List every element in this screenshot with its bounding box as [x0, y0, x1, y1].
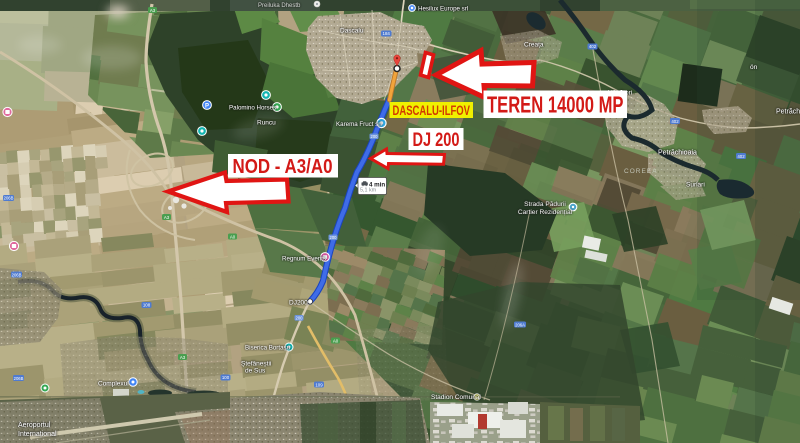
svg-text:P: P	[205, 104, 209, 110]
svg-text:Ștefăneștii: Ștefăneștii	[241, 361, 271, 368]
svg-text:Cartier Rezidențial: Cartier Rezidențial	[518, 209, 573, 216]
svg-text:COREEA: COREEA	[624, 168, 657, 175]
svg-text:DJ 200: DJ 200	[413, 130, 460, 151]
svg-text:402: 402	[737, 154, 745, 159]
svg-text:206B: 206B	[14, 376, 24, 381]
svg-text:Creața: Creața	[524, 42, 544, 49]
svg-text:A3: A3	[164, 215, 170, 220]
svg-text:Karema Fruct srl: Karema Fruct srl	[336, 121, 382, 128]
svg-text:Surlari: Surlari	[686, 182, 705, 189]
svg-text:402: 402	[589, 44, 597, 49]
svg-text:Petrăchioaia: Petrăchioaia	[658, 150, 697, 157]
svg-text:Stadion Comunal: Stadion Comunal	[431, 394, 481, 401]
svg-text:Hesilux Europe srl: Hesilux Europe srl	[418, 6, 468, 13]
svg-text:Biserica Bortașu: Biserica Bortașu	[245, 345, 291, 352]
svg-text:Internațional: Internațional	[18, 431, 57, 438]
svg-text:NOD - A3/A0: NOD - A3/A0	[233, 156, 333, 178]
svg-text:206A: 206A	[515, 322, 525, 327]
svg-text:A0: A0	[333, 338, 339, 343]
svg-text:DJ200: DJ200	[289, 300, 308, 307]
svg-text:184: 184	[383, 31, 391, 36]
svg-text:200: 200	[371, 134, 379, 139]
svg-text:206B: 206B	[4, 196, 14, 201]
svg-text:Regnum Events: Regnum Events	[282, 256, 326, 263]
svg-text:TEREN 14000 MP: TEREN 14000 MP	[487, 92, 624, 118]
svg-text:402: 402	[671, 119, 679, 124]
svg-text:Runcu: Runcu	[257, 120, 276, 127]
svg-text:200: 200	[330, 235, 338, 240]
svg-text:Dascalu: Dascalu	[340, 28, 364, 35]
svg-text:ön: ön	[750, 64, 758, 71]
svg-text:200: 200	[296, 315, 304, 320]
svg-text:A3: A3	[150, 8, 156, 13]
svg-text:Complexul: Complexul	[98, 381, 129, 388]
svg-text:Aeroportul: Aeroportul	[18, 422, 51, 429]
svg-text:109: 109	[315, 382, 323, 387]
svg-text:5,1 km: 5,1 km	[360, 188, 377, 194]
svg-text:DASCALU-ILFOV: DASCALU-ILFOV	[393, 103, 471, 119]
svg-text:Petrăch: Petrăch	[776, 109, 800, 116]
svg-text:A3: A3	[180, 355, 186, 360]
svg-text:100: 100	[222, 375, 230, 380]
svg-text:206B: 206B	[12, 272, 22, 277]
svg-text:A0: A0	[230, 234, 236, 239]
svg-text:de Sus: de Sus	[245, 368, 266, 375]
svg-text:Strada Pădurii: Strada Pădurii	[524, 201, 566, 208]
svg-text:108: 108	[143, 303, 151, 308]
svg-text:Palomino Horses: Palomino Horses	[229, 105, 276, 112]
svg-text:Preiluka Dhestb: Preiluka Dhestb	[258, 3, 301, 9]
